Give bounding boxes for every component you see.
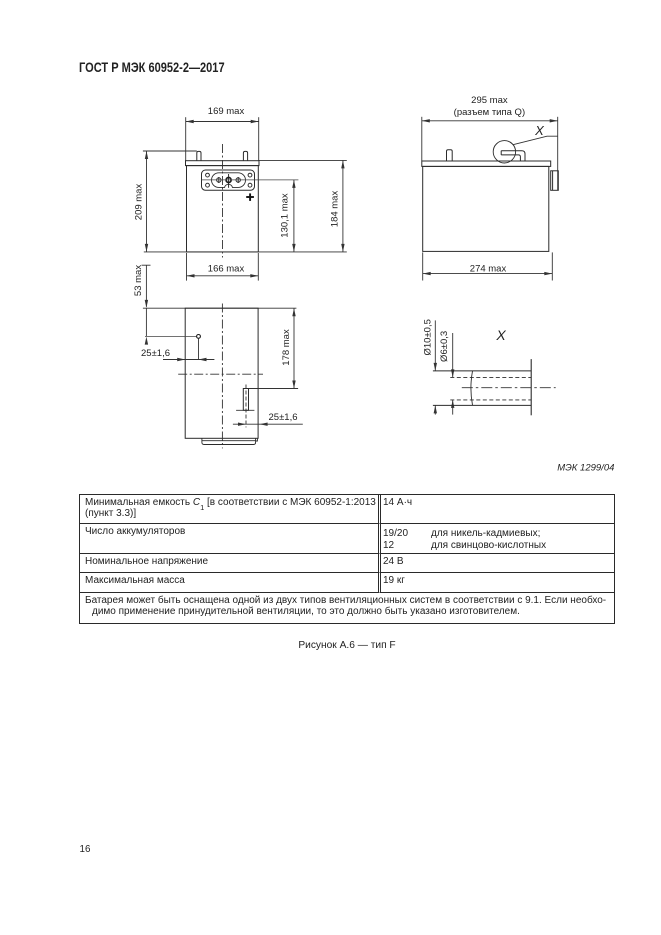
svg-text:53 max: 53 max bbox=[133, 265, 144, 296]
svg-text:Ø6±0,3: Ø6±0,3 bbox=[439, 331, 450, 362]
svg-text:(разъем типа Q): (разъем типа Q) bbox=[454, 107, 525, 118]
svg-text:Ø10±0,5: Ø10±0,5 bbox=[422, 319, 433, 355]
svg-text:МЭК 1299/04: МЭК 1299/04 bbox=[557, 463, 614, 474]
svg-text:X: X bbox=[534, 123, 545, 138]
svg-text:25±1,6: 25±1,6 bbox=[269, 412, 298, 423]
svg-text:130,1 max: 130,1 max bbox=[279, 193, 290, 238]
svg-text:X: X bbox=[495, 327, 506, 343]
svg-text:209 max: 209 max bbox=[133, 184, 144, 221]
svg-text:166 max: 166 max bbox=[208, 264, 245, 275]
svg-text:184 max: 184 max bbox=[329, 191, 340, 228]
svg-text:169 max: 169 max bbox=[208, 106, 245, 117]
svg-text:178 max: 178 max bbox=[281, 329, 292, 366]
svg-text:274 max: 274 max bbox=[470, 263, 507, 274]
svg-text:295 max: 295 max bbox=[471, 95, 508, 106]
svg-text:25±1,6: 25±1,6 bbox=[141, 348, 170, 359]
